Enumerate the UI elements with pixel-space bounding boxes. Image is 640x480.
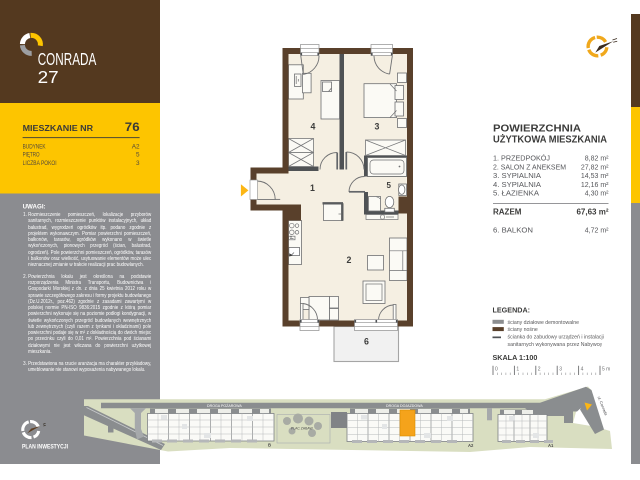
svg-text:BUDYNEK: BUDYNEK: [23, 143, 47, 150]
svg-text:DROGA DOJAZDOWA: DROGA DOJAZDOWA: [386, 404, 423, 408]
svg-text:76: 76: [125, 120, 140, 134]
svg-text:4,72 m²: 4,72 m²: [585, 228, 609, 235]
svg-text:2: 2: [538, 367, 541, 373]
svg-text:LEGENDA:: LEGENDA:: [493, 306, 531, 315]
svg-text:1: 1: [516, 367, 519, 373]
svg-text:B: B: [268, 443, 271, 448]
svg-text:6: 6: [364, 337, 369, 347]
svg-text:A1: A1: [548, 443, 554, 448]
svg-text:ściany nośne: ściany nośne: [508, 327, 538, 333]
svg-text:8,82 m²: 8,82 m²: [585, 156, 609, 163]
svg-text:UWAGI:: UWAGI:: [23, 204, 46, 211]
svg-text:RAZEM: RAZEM: [493, 208, 522, 217]
svg-text:5: 5: [387, 181, 392, 190]
svg-text:2: 2: [347, 255, 352, 265]
svg-text:A2: A2: [132, 143, 140, 150]
svg-text:4: 4: [581, 367, 584, 373]
svg-text:DROGA POŻAROWA: DROGA POŻAROWA: [207, 403, 242, 408]
svg-text:5. ŁAZIENKA: 5. ŁAZIENKA: [493, 191, 539, 198]
svg-text:LICZBA POKOI: LICZBA POKOI: [23, 160, 57, 167]
svg-text:4. SYPIALNIA: 4. SYPIALNIA: [493, 182, 541, 189]
svg-text:UŻYTKOWA MIESZKANIA: UŻYTKOWA MIESZKANIA: [493, 132, 607, 145]
svg-text:ścianka do zabudowy urządzeń i: ścianka do zabudowy urządzeń i instalacj…: [508, 335, 604, 341]
svg-text:PLAC ZABAW: PLAC ZABAW: [291, 427, 314, 431]
svg-text:POWIERZCHNIA: POWIERZCHNIA: [493, 123, 581, 134]
svg-text:3. SYPIALNIA: 3. SYPIALNIA: [493, 173, 541, 180]
svg-text:ściany działowe demontowalne: ściany działowe demontowalne: [508, 320, 580, 326]
svg-text:6. BALKON: 6. BALKON: [493, 228, 533, 235]
svg-text:67,63 m²: 67,63 m²: [576, 208, 608, 217]
svg-text:MIESZKANIE NR: MIESZKANIE NR: [23, 123, 94, 133]
svg-text:1: 1: [310, 183, 315, 193]
svg-text:14,53 m²: 14,53 m²: [581, 173, 609, 180]
svg-text:4: 4: [311, 122, 316, 132]
svg-text:27,82 m²: 27,82 m²: [581, 164, 609, 171]
svg-text:2. SALON Z ANEKSEM: 2. SALON Z ANEKSEM: [493, 164, 566, 171]
svg-text:3: 3: [375, 122, 380, 132]
svg-text:PLAN INWESTYCJI: PLAN INWESTYCJI: [22, 444, 68, 451]
svg-text:SKALA 1:100: SKALA 1:100: [493, 353, 538, 362]
svg-text:PIĘTRO: PIĘTRO: [23, 152, 40, 159]
svg-text:A2: A2: [468, 443, 474, 448]
svg-text:27: 27: [38, 67, 59, 87]
svg-text:0: 0: [495, 367, 498, 373]
svg-text:5: 5: [136, 152, 140, 159]
svg-text:1. PRZEDPOKÓJ: 1. PRZEDPOKÓJ: [493, 154, 550, 163]
svg-text:12,16 m²: 12,16 m²: [581, 182, 609, 189]
svg-text:3: 3: [559, 367, 562, 373]
svg-text:3: 3: [136, 160, 140, 167]
svg-text:5 m: 5 m: [602, 367, 610, 373]
svg-text:sanitarnych wykonywana przez N: sanitarnych wykonywana przez Nabywcę: [508, 342, 603, 348]
svg-text:4,30 m²: 4,30 m²: [585, 191, 609, 198]
svg-text:CONRADA: CONRADA: [38, 49, 97, 69]
